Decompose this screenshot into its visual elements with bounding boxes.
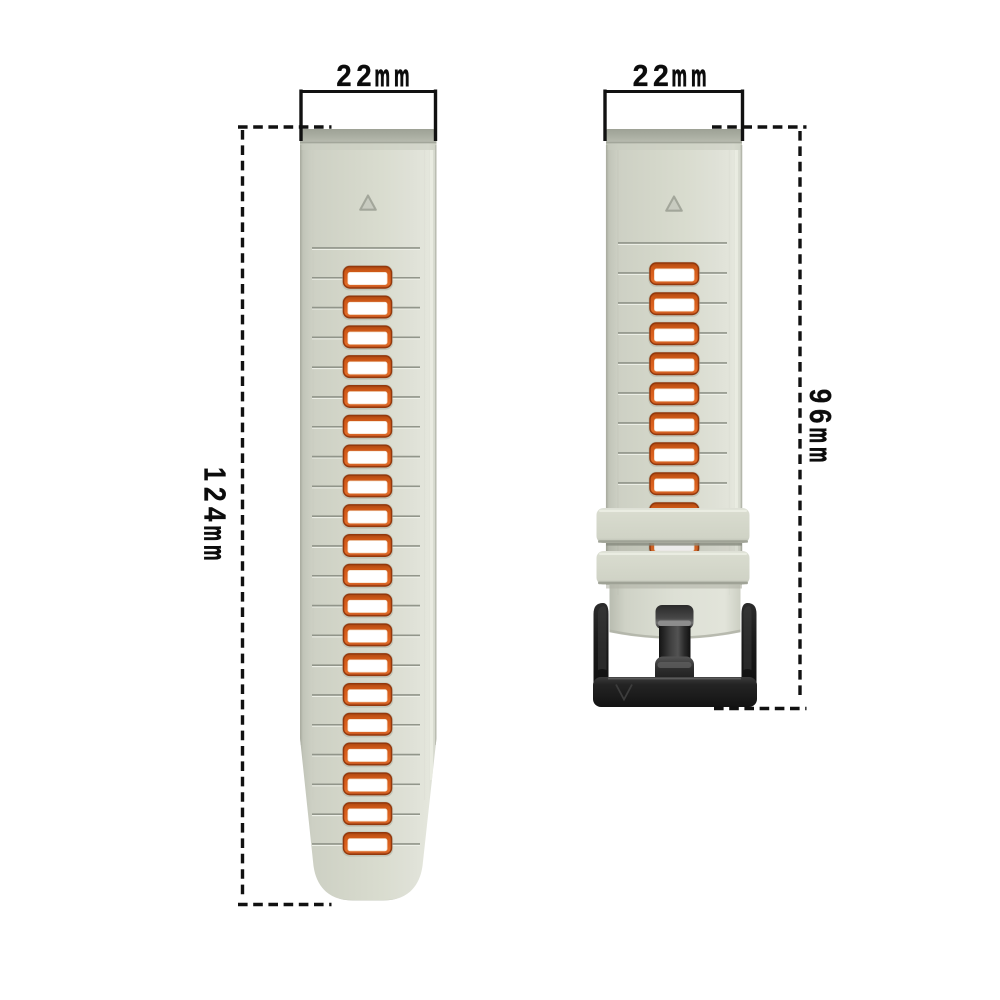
svg-text:m: m [803, 428, 838, 444]
svg-text:2: 2 [633, 58, 649, 93]
svg-text:2: 2 [653, 58, 669, 93]
svg-text:4: 4 [198, 507, 233, 522]
svg-text:2: 2 [336, 58, 351, 93]
svg-text:9: 9 [803, 389, 838, 404]
svg-text:2: 2 [198, 487, 233, 502]
svg-text:2: 2 [356, 58, 371, 93]
svg-text:1: 1 [198, 467, 233, 481]
svg-text:m: m [672, 58, 688, 93]
svg-text:m: m [691, 58, 707, 93]
svg-text:m: m [375, 58, 391, 93]
svg-text:m: m [198, 526, 233, 542]
svg-text:m: m [394, 58, 410, 93]
svg-text:6: 6 [803, 409, 838, 424]
svg-text:m: m [198, 545, 233, 561]
svg-text:m: m [803, 447, 838, 463]
